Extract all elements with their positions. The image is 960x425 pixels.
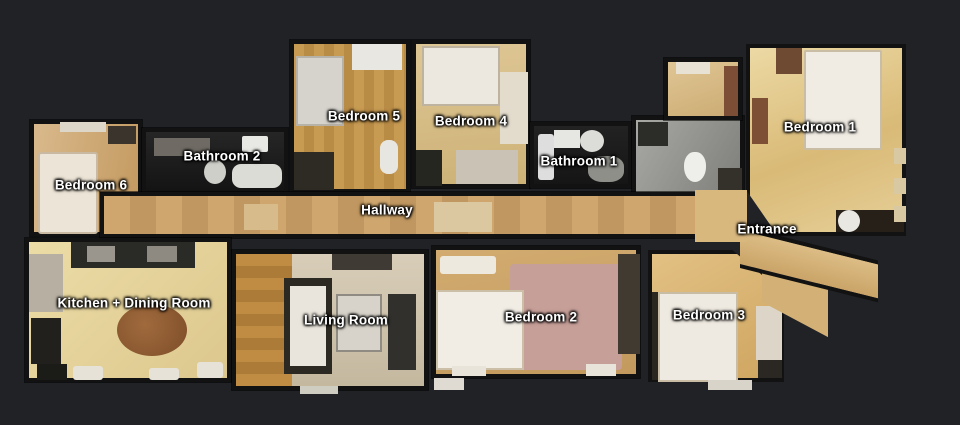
door-shape bbox=[676, 62, 710, 74]
shower-shape bbox=[538, 134, 554, 180]
cabinet-shape bbox=[29, 254, 63, 312]
doormat-shape bbox=[434, 202, 492, 232]
wardrobe-shape bbox=[618, 254, 640, 354]
bed-shape bbox=[422, 46, 500, 106]
closet-shape bbox=[756, 306, 782, 360]
dining-table-shape bbox=[117, 304, 187, 356]
cabinet-shape bbox=[456, 150, 518, 184]
room-entrance[interactable] bbox=[695, 190, 747, 242]
chair-overflow-shape bbox=[708, 380, 752, 390]
dark-fixture-shape bbox=[758, 360, 782, 378]
dark-fixture-shape bbox=[37, 364, 67, 380]
chair-shape bbox=[452, 366, 486, 376]
sofa-shape bbox=[294, 152, 334, 190]
wardrobe-shape bbox=[724, 66, 738, 116]
window-sill-shape bbox=[894, 148, 906, 164]
bathtub-shape bbox=[232, 164, 282, 188]
room-hallway[interactable] bbox=[100, 192, 746, 238]
sink-shape bbox=[242, 136, 268, 152]
cabinet-shape bbox=[776, 48, 802, 74]
stove-shape bbox=[87, 246, 115, 262]
chair-shape bbox=[149, 368, 179, 380]
room-living-room[interactable] bbox=[232, 250, 428, 390]
chair-overflow-shape bbox=[300, 386, 338, 394]
wc-corridor[interactable] bbox=[632, 116, 744, 196]
bed-shape bbox=[804, 50, 882, 150]
tv-sideboard-shape bbox=[332, 254, 392, 270]
rug-shape bbox=[510, 264, 622, 370]
bed-shape bbox=[38, 152, 98, 234]
door-shadow-shape bbox=[416, 150, 442, 186]
wardrobe-shape bbox=[500, 72, 528, 144]
bathtub-shape bbox=[588, 156, 624, 182]
dresser-shape bbox=[352, 44, 402, 70]
radiator-shape bbox=[380, 140, 398, 174]
sink-shape bbox=[147, 246, 177, 262]
dark-fixture-shape bbox=[638, 122, 668, 146]
stool-shape bbox=[838, 210, 860, 232]
chair-overflow-shape bbox=[434, 378, 464, 390]
room-bedroom-4[interactable] bbox=[412, 40, 530, 188]
chair-shape bbox=[586, 364, 616, 376]
coffee-table-shape bbox=[336, 294, 382, 352]
closet-anteroom[interactable] bbox=[664, 58, 742, 120]
sink-shape bbox=[554, 130, 580, 148]
room-bathroom-2[interactable] bbox=[142, 128, 288, 194]
room-bathroom-1[interactable] bbox=[530, 122, 632, 188]
chair-shape bbox=[197, 362, 223, 378]
doormat-shape bbox=[244, 204, 278, 230]
floorplan-viewport: Bedroom 6 Bathroom 2 Bedroom 5 Bedroom 4… bbox=[0, 0, 960, 425]
wardrobe-shape bbox=[752, 98, 768, 144]
bed-shape bbox=[436, 290, 524, 370]
bed-shape bbox=[658, 292, 738, 382]
room-kitchen-dining[interactable] bbox=[25, 238, 231, 382]
toilet-shape bbox=[684, 152, 706, 182]
room-bedroom-2[interactable] bbox=[432, 246, 640, 378]
dark-fixture-shape bbox=[718, 168, 742, 192]
dresser-shape bbox=[108, 126, 136, 144]
pillow-shape bbox=[440, 256, 496, 274]
shelf-shape bbox=[60, 122, 106, 132]
toilet-shape bbox=[204, 160, 226, 184]
room-bedroom-1[interactable] bbox=[746, 44, 906, 236]
window-sill-shape bbox=[894, 178, 906, 194]
sofa-cushions-shape bbox=[290, 286, 326, 366]
bed-shape bbox=[296, 56, 344, 126]
window-sill-shape bbox=[894, 206, 906, 222]
washer-shape bbox=[580, 130, 604, 152]
fridge-shape bbox=[31, 318, 61, 364]
chair-shape bbox=[73, 366, 103, 380]
counter-shape bbox=[154, 138, 210, 156]
room-bedroom-5[interactable] bbox=[290, 40, 410, 193]
floorplan-canvas[interactable]: Bedroom 6 Bathroom 2 Bedroom 5 Bedroom 4… bbox=[0, 0, 960, 425]
bookshelf-shape bbox=[388, 294, 416, 370]
